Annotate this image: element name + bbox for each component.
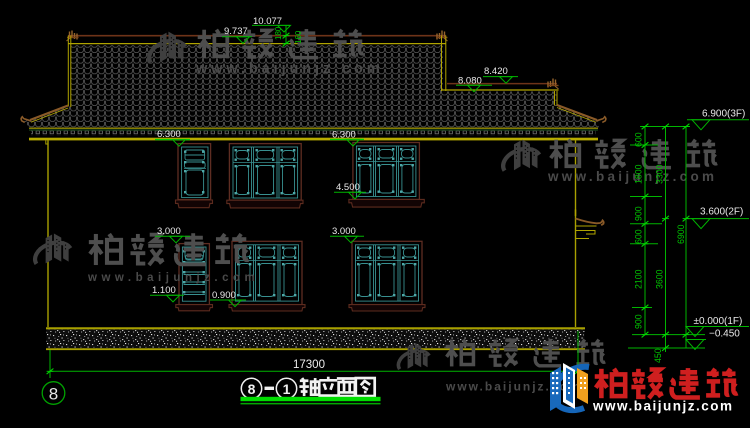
svg-text:www.baijunjz.com: www.baijunjz.com xyxy=(195,61,384,77)
svg-text:1: 1 xyxy=(283,381,291,397)
svg-text:900: 900 xyxy=(634,314,644,329)
svg-text:600: 600 xyxy=(634,132,644,147)
svg-text:1800: 1800 xyxy=(634,164,644,184)
svg-text:450: 450 xyxy=(653,348,663,363)
svg-text:160: 160 xyxy=(294,30,303,44)
svg-text:8: 8 xyxy=(49,385,58,404)
svg-text:6.300: 6.300 xyxy=(157,129,181,140)
svg-text:www.baijunjz.com: www.baijunjz.com xyxy=(87,272,259,284)
svg-text:17300: 17300 xyxy=(293,359,325,371)
svg-text:www.baijunjz.com: www.baijunjz.com xyxy=(592,399,734,414)
svg-text:1.100: 1.100 xyxy=(152,285,176,296)
svg-text:3.600(2F): 3.600(2F) xyxy=(700,207,743,218)
svg-text:8.420: 8.420 xyxy=(484,66,508,77)
svg-text:−0.450: −0.450 xyxy=(709,329,740,340)
svg-text:2100: 2100 xyxy=(634,269,644,289)
svg-text:9.737: 9.737 xyxy=(224,26,248,37)
svg-text:6.900(3F): 6.900(3F) xyxy=(702,109,745,120)
svg-text:www.baijunjz.com: www.baijunjz.com xyxy=(445,380,582,394)
svg-text:3.000: 3.000 xyxy=(157,226,181,237)
svg-text:3.000: 3.000 xyxy=(332,226,356,237)
svg-text:180: 180 xyxy=(274,26,283,40)
svg-text:600: 600 xyxy=(634,229,644,244)
svg-text:0.900: 0.900 xyxy=(212,290,236,301)
svg-text:3600: 3600 xyxy=(655,269,665,289)
svg-text:www.baijunjz.com: www.baijunjz.com xyxy=(547,169,717,184)
svg-text:±0.000(1F): ±0.000(1F) xyxy=(694,316,743,327)
svg-text:900: 900 xyxy=(634,206,644,221)
svg-text:6900: 6900 xyxy=(676,224,686,244)
svg-text:4.500: 4.500 xyxy=(336,182,360,193)
svg-text:8: 8 xyxy=(248,381,256,397)
svg-text:3300: 3300 xyxy=(655,164,665,184)
